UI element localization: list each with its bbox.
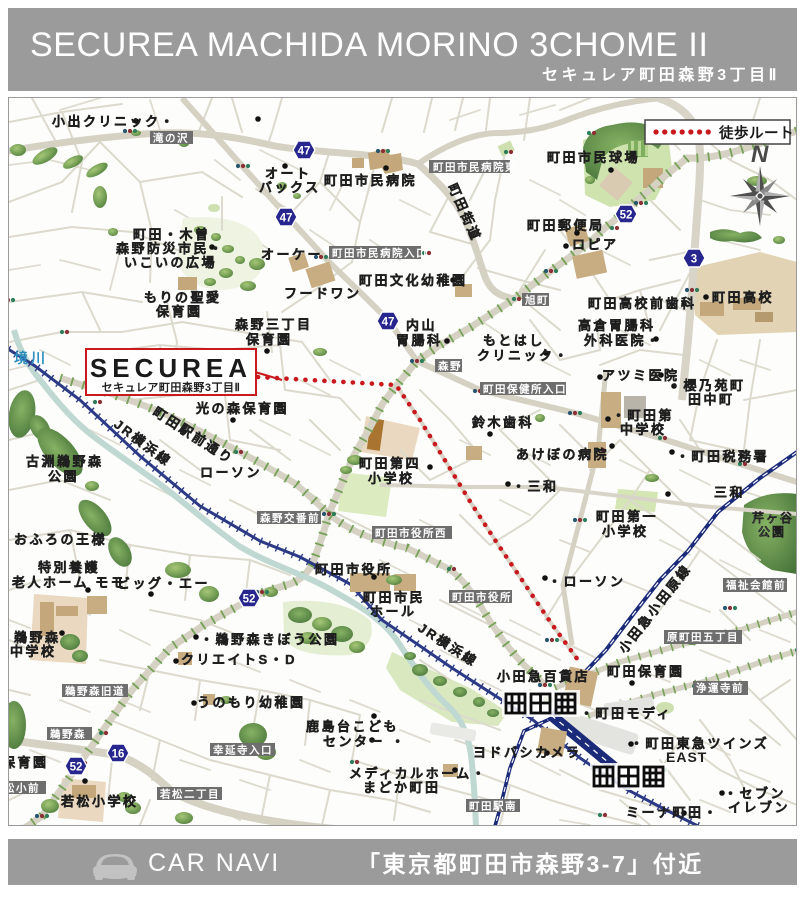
svg-text:・町田モディ: ・町田モディ bbox=[580, 706, 672, 721]
svg-text:原町田五丁目: 原町田五丁目 bbox=[667, 632, 739, 644]
svg-text:・町田税務署: ・町田税務署 bbox=[676, 449, 769, 464]
svg-text:保育園: 保育園 bbox=[245, 332, 293, 347]
svg-text:ホール: ホール bbox=[370, 604, 417, 619]
svg-text:森野三丁目: 森野三丁目 bbox=[235, 317, 313, 332]
svg-text:若松二丁目: 若松二丁目 bbox=[159, 788, 220, 801]
svg-text:・ローソン: ・ローソン bbox=[548, 574, 626, 589]
svg-text:「東京都町田市森野3-7」付近: 「東京都町田市森野3-7」付近 bbox=[357, 851, 704, 877]
svg-text:滝の沢: 滝の沢 bbox=[153, 132, 189, 145]
svg-text:中学校: 中学校 bbox=[10, 644, 57, 659]
svg-text:町田市役所: 町田市役所 bbox=[315, 562, 393, 577]
svg-text:町田市民病院東: 町田市民病院東 bbox=[433, 161, 517, 174]
svg-text:町田市民病院入口: 町田市民病院入口 bbox=[332, 247, 428, 260]
svg-text:旭町: 旭町 bbox=[524, 294, 549, 307]
svg-text:町田保健所入口: 町田保健所入口 bbox=[483, 383, 567, 396]
svg-text:高倉胃腸科: 高倉胃腸科 bbox=[578, 318, 656, 333]
svg-text:公園: 公園 bbox=[758, 525, 786, 539]
svg-text:胃腸科: 胃腸科 bbox=[396, 333, 443, 348]
svg-text:3: 3 bbox=[691, 254, 697, 266]
svg-text:光の森保育園: 光の森保育園 bbox=[195, 401, 289, 416]
svg-text:町田保育園: 町田保育園 bbox=[607, 664, 685, 679]
svg-text:バックス: バックス bbox=[259, 180, 321, 195]
svg-text:メディカルホーム・: メディカルホーム・ bbox=[349, 766, 487, 781]
svg-text:小出クリニック・: 小出クリニック・ bbox=[52, 114, 176, 129]
svg-text:森野: 森野 bbox=[437, 360, 462, 373]
svg-text:町田市民病院: 町田市民病院 bbox=[324, 173, 417, 188]
svg-text:松小前: 松小前 bbox=[4, 782, 40, 795]
svg-text:鵜野森旧道: 鵜野森旧道 bbox=[64, 685, 125, 698]
svg-text:田中町: 田中町 bbox=[688, 392, 735, 407]
svg-text:・三和: ・三和 bbox=[512, 479, 559, 494]
svg-text:オーケー: オーケー bbox=[261, 247, 323, 262]
svg-text:町田第一: 町田第一 bbox=[596, 509, 658, 524]
svg-text:中学校: 中学校 bbox=[620, 422, 667, 437]
svg-text:浄運寺前: 浄運寺前 bbox=[696, 682, 744, 695]
svg-text:森野防災市民・: 森野防災市民・ bbox=[116, 241, 225, 256]
svg-text:小田急百貨店: 小田急百貨店 bbox=[497, 669, 590, 684]
svg-text:福祉会館前: 福祉会館前 bbox=[725, 579, 786, 592]
svg-text:オート: オート bbox=[265, 166, 312, 181]
svg-text:町田文化幼稚園: 町田文化幼稚園 bbox=[359, 273, 468, 288]
svg-text:境川: 境川 bbox=[14, 350, 48, 366]
svg-text:16: 16 bbox=[112, 749, 125, 761]
svg-text:フードワン: フードワン bbox=[284, 286, 362, 301]
svg-text:・鵜野森きぼう公園: ・鵜野森きぼう公園 bbox=[200, 632, 340, 647]
svg-text:小学校: 小学校 bbox=[368, 471, 415, 486]
svg-text:徒歩ルート: 徒歩ルート bbox=[718, 124, 794, 142]
svg-text:町田第四: 町田第四 bbox=[359, 456, 421, 471]
svg-text:ヨドバシカメラ: ヨドバシカメラ bbox=[473, 745, 582, 760]
svg-text:外科医院・: 外科医院・ bbox=[583, 333, 662, 348]
svg-text:公園: 公園 bbox=[48, 469, 79, 484]
svg-text:町田高校前歯科: 町田高校前歯科 bbox=[588, 296, 697, 311]
svg-text:イレブン: イレブン bbox=[728, 800, 790, 815]
svg-text:鈴木歯科: 鈴木歯科 bbox=[472, 415, 534, 430]
svg-text:鵜野森: 鵜野森 bbox=[13, 630, 61, 645]
svg-text:・櫻乃苑町: ・櫻乃苑町 bbox=[668, 378, 746, 393]
svg-text:鵜野森: 鵜野森 bbox=[49, 728, 86, 741]
svg-text:保育園: 保育園 bbox=[155, 304, 203, 319]
svg-text:SECUREA: SECUREA bbox=[90, 353, 252, 383]
svg-text:SECUREA MACHIDA MORINO 3CHOME: SECUREA MACHIDA MORINO 3CHOME II bbox=[30, 26, 709, 64]
svg-text:センター ・: センター ・ bbox=[323, 734, 407, 749]
svg-text:EAST: EAST bbox=[666, 749, 707, 765]
svg-text:・町田第: ・町田第 bbox=[612, 408, 674, 423]
svg-text:うのもり幼稚園: うのもり幼稚園 bbox=[197, 695, 306, 710]
svg-text:もとはし: もとはし bbox=[483, 333, 545, 348]
svg-text:セキュレア町田森野3丁目Ⅱ: セキュレア町田森野3丁目Ⅱ bbox=[542, 65, 780, 84]
svg-text:町田・木曽: 町田・木曽 bbox=[133, 227, 211, 242]
svg-text:52: 52 bbox=[620, 210, 633, 222]
svg-text:47: 47 bbox=[298, 146, 311, 158]
svg-text:47: 47 bbox=[382, 317, 395, 329]
svg-text:小学校: 小学校 bbox=[602, 524, 649, 539]
svg-text:おふろの王様: おふろの王様 bbox=[14, 532, 107, 547]
svg-text:52: 52 bbox=[70, 762, 83, 774]
svg-text:もりの聖愛: もりの聖愛 bbox=[144, 290, 222, 305]
svg-text:町田市民: 町田市民 bbox=[363, 590, 425, 605]
svg-text:クリニック・: クリニック・ bbox=[477, 348, 570, 363]
svg-text:三和: 三和 bbox=[714, 485, 745, 500]
svg-text:CAR NAVI: CAR NAVI bbox=[148, 849, 280, 877]
svg-text:特別養護: 特別養護 bbox=[38, 560, 100, 575]
svg-text:町田郵便局: 町田郵便局 bbox=[527, 218, 605, 233]
svg-text:いこいの広場: いこいの広場 bbox=[124, 255, 217, 270]
svg-text:森野交番前: 森野交番前 bbox=[259, 512, 320, 525]
svg-text:町田市民球場: 町田市民球場 bbox=[547, 150, 640, 165]
svg-text:ミーナ町田・: ミーナ町田・ bbox=[626, 805, 719, 820]
svg-text:町田市役所西: 町田市役所西 bbox=[375, 527, 447, 540]
svg-text:ビッグ・エー: ビッグ・エー bbox=[117, 576, 210, 591]
svg-text:N: N bbox=[751, 141, 769, 168]
svg-text:52: 52 bbox=[243, 594, 256, 606]
svg-text:クリエイトS・D: クリエイトS・D bbox=[181, 652, 297, 667]
svg-text:古淵鵜野森: 古淵鵜野森 bbox=[26, 454, 104, 469]
svg-text:町田高校: 町田高校 bbox=[712, 290, 774, 305]
svg-text:幸延寺入口: 幸延寺入口 bbox=[213, 744, 273, 757]
svg-text:町田市役所: 町田市役所 bbox=[452, 591, 512, 604]
svg-text:47: 47 bbox=[280, 213, 293, 225]
svg-text:鹿島台こども: 鹿島台こども bbox=[306, 719, 399, 734]
svg-text:あけぼの病院: あけぼの病院 bbox=[516, 447, 609, 462]
svg-text:芹ヶ谷: 芹ヶ谷 bbox=[752, 510, 794, 525]
svg-text:セキュレア町田森野3丁目Ⅱ: セキュレア町田森野3丁目Ⅱ bbox=[102, 380, 241, 394]
svg-text:まどか町田: まどか町田 bbox=[363, 780, 441, 795]
svg-text:町田駅南: 町田駅南 bbox=[469, 800, 517, 813]
svg-text:老人ホーム モモ: 老人ホーム モモ bbox=[11, 575, 126, 590]
svg-text:ロピア: ロピア bbox=[572, 237, 619, 252]
svg-text:若松小学校: 若松小学校 bbox=[60, 794, 139, 809]
svg-text:・セブン: ・セブン bbox=[724, 786, 786, 801]
svg-text:内山: 内山 bbox=[406, 318, 437, 333]
svg-text:ローソン: ローソン bbox=[200, 465, 262, 480]
